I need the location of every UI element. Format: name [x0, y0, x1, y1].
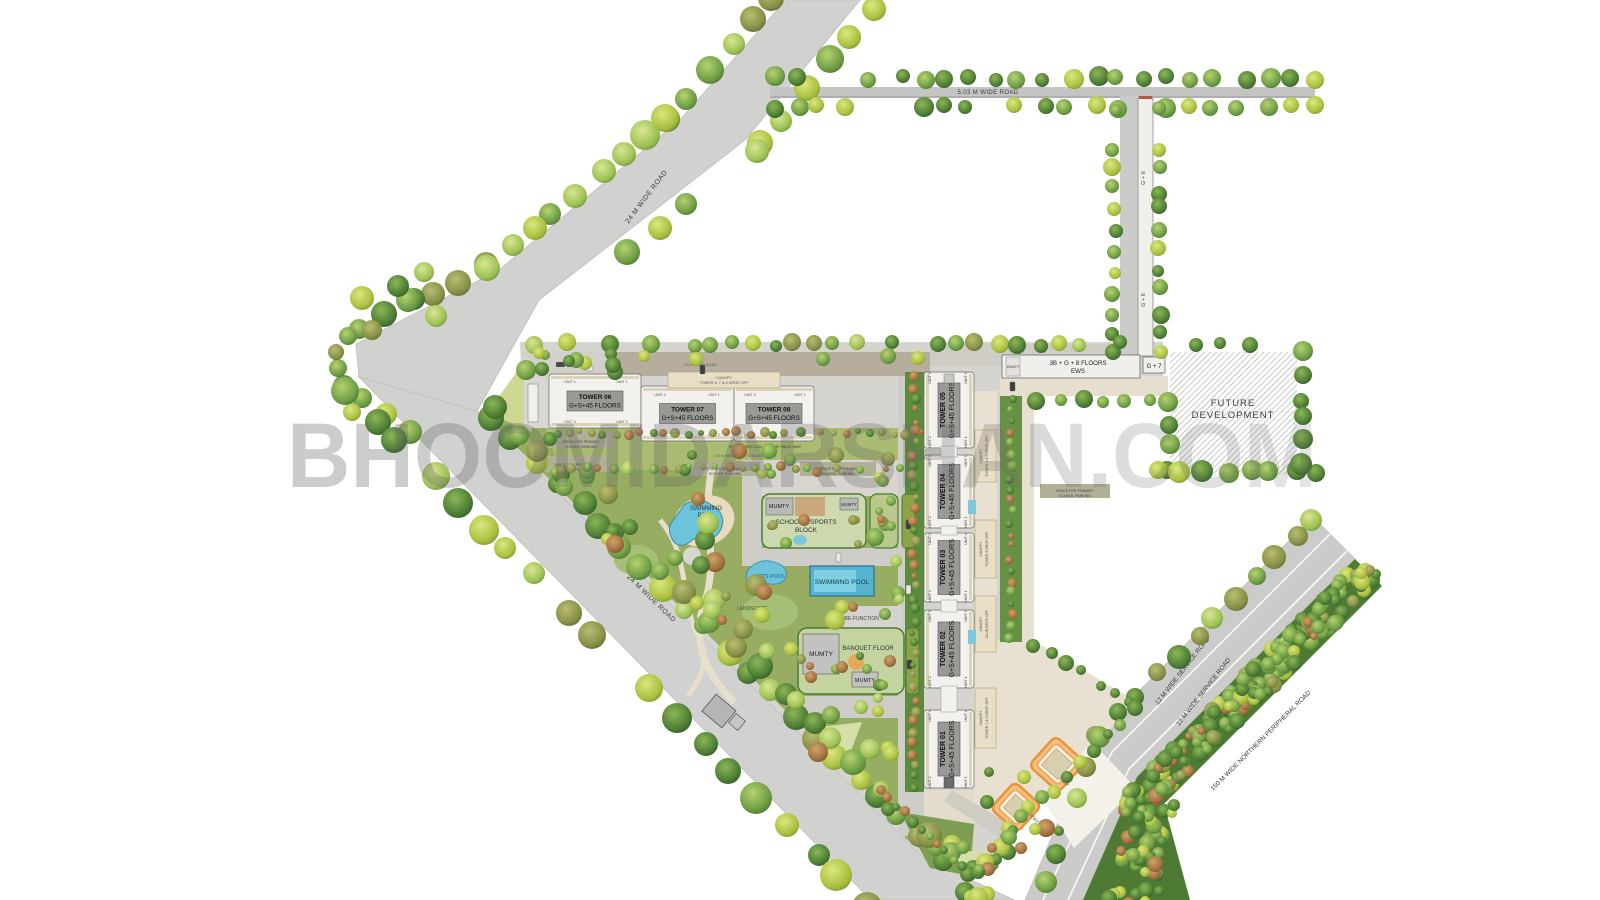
svg-text:5.03 M WIDE ROAD: 5.03 M WIDE ROAD: [957, 90, 1018, 96]
svg-text:G+S+45 FLOORS: G+S+45 FLOORS: [949, 720, 956, 777]
svg-text:G + 7: G + 7: [1147, 364, 1163, 370]
svg-text:G + 6: G + 6: [1141, 293, 1147, 307]
svg-text:UNIT 2: UNIT 2: [928, 516, 932, 527]
svg-text:UNIT 1: UNIT 1: [964, 676, 968, 687]
svg-text:MUMTY: MUMTY: [1007, 365, 1020, 369]
svg-text:TOWER 06: TOWER 06: [579, 394, 612, 401]
svg-text:CANOPY: CANOPY: [979, 710, 983, 725]
svg-text:UNIT 4: UNIT 4: [964, 533, 968, 544]
svg-text:MUMTY: MUMTY: [809, 651, 833, 658]
svg-text:G + 6: G + 6: [1141, 171, 1147, 185]
svg-text:CANOPY: CANOPY: [716, 376, 733, 380]
svg-text:BLOCK: BLOCK: [795, 527, 818, 534]
svg-text:UNIT 3: UNIT 3: [928, 710, 932, 721]
svg-text:UNIT 1: UNIT 1: [964, 516, 968, 527]
svg-text:UNIT 1: UNIT 1: [964, 776, 968, 787]
svg-text:TOWER 1 & 2 DROP-OFF: TOWER 1 & 2 DROP-OFF: [985, 697, 989, 738]
svg-text:TOWER 02: TOWER 02: [940, 631, 947, 667]
svg-text:UNIT 2: UNIT 2: [928, 676, 932, 687]
svg-text:UNIT 3: UNIT 3: [928, 610, 932, 621]
svg-text:UNIT 4: UNIT 4: [964, 610, 968, 621]
svg-text:UNIT 3: UNIT 3: [928, 372, 932, 383]
svg-text:3B + G + 8 FLOORS: 3B + G + 8 FLOORS: [1049, 360, 1106, 367]
svg-text:UNIT 4: UNIT 4: [654, 393, 665, 397]
svg-text:BHOOMIDARSHAN.COM: BHOOMIDARSHAN.COM: [287, 405, 1317, 507]
svg-text:CANOPY: CANOPY: [979, 541, 983, 556]
svg-text:UNIT 1: UNIT 1: [616, 380, 627, 384]
svg-text:UNIT 2: UNIT 2: [928, 590, 932, 601]
svg-text:EWS: EWS: [1071, 368, 1085, 375]
svg-text:UNIT 3: UNIT 3: [928, 533, 932, 544]
svg-text:BANQUET FLOOR: BANQUET FLOOR: [842, 646, 894, 652]
svg-text:G+S+45 FLOORS: G+S+45 FLOORS: [949, 539, 956, 596]
svg-text:CLUB DROP-OFF: CLUB DROP-OFF: [985, 610, 989, 639]
svg-text:TOWER 3 DROP-OFF: TOWER 3 DROP-OFF: [985, 531, 989, 566]
svg-text:PRE-FUNCTION: PRE-FUNCTION: [841, 616, 879, 622]
svg-text:UNIT 4: UNIT 4: [964, 372, 968, 383]
svg-text:UNIT 4: UNIT 4: [564, 380, 575, 384]
svg-text:SWIMMING POOL: SWIMMING POOL: [815, 579, 870, 586]
svg-text:UNIT 4: UNIT 4: [744, 393, 755, 397]
svg-text:UNIT 1: UNIT 1: [964, 590, 968, 601]
svg-text:UNIT 2: UNIT 2: [928, 776, 932, 787]
svg-text:TOWER 6, 7 & 8 DROP-OFF: TOWER 6, 7 & 8 DROP-OFF: [699, 381, 749, 385]
svg-text:TOWER 03: TOWER 03: [940, 550, 947, 586]
svg-text:CANOPY: CANOPY: [979, 616, 983, 631]
svg-text:MUMTY: MUMTY: [855, 678, 875, 684]
svg-text:G+S+45 FLOORS: G+S+45 FLOORS: [949, 620, 956, 677]
svg-text:UNIT 4: UNIT 4: [964, 710, 968, 721]
svg-text:UNIT 1: UNIT 1: [708, 393, 719, 397]
svg-text:UNIT 1: UNIT 1: [794, 393, 805, 397]
svg-text:TOWER 01: TOWER 01: [940, 731, 947, 767]
